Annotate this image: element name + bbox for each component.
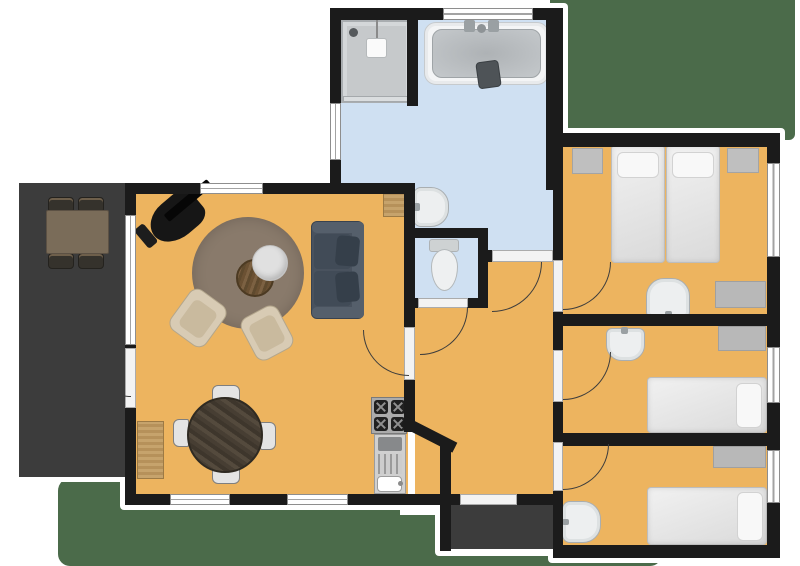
wall xyxy=(553,314,780,326)
window xyxy=(767,450,780,503)
window xyxy=(287,494,348,505)
bed-pillow xyxy=(736,383,762,428)
wall xyxy=(330,8,341,188)
window xyxy=(170,494,230,505)
outdoor-table xyxy=(46,210,109,254)
sofa-pillow xyxy=(335,235,361,267)
bedroom3-rug xyxy=(713,446,766,468)
bedroom3-basin-tap xyxy=(562,519,569,525)
bathtub-tap xyxy=(464,20,475,32)
bathtub-hand-shower xyxy=(475,60,502,90)
floor-plan xyxy=(0,0,800,566)
bed-pillow xyxy=(737,492,763,541)
dining-table xyxy=(187,397,263,473)
nightstand xyxy=(727,148,759,173)
counter-drainer xyxy=(378,454,402,474)
window xyxy=(200,183,263,194)
side-table xyxy=(252,245,288,281)
wall xyxy=(517,494,557,505)
kitchen-faucet xyxy=(398,481,403,486)
window xyxy=(767,163,780,257)
bedroom2-rug xyxy=(718,326,766,351)
nightstand xyxy=(572,148,603,174)
stove-burner xyxy=(374,417,388,431)
counter-inset xyxy=(378,437,402,451)
stove-burner xyxy=(391,400,405,414)
wall xyxy=(478,228,488,308)
shower-rail xyxy=(343,96,412,102)
wall xyxy=(125,183,415,194)
door-threshold xyxy=(553,350,563,402)
lawn-top-right xyxy=(550,0,795,140)
outdoor-chair xyxy=(48,253,74,269)
bed-pillow xyxy=(617,152,659,178)
wall xyxy=(440,443,451,551)
bathtub-tap xyxy=(488,20,499,32)
window xyxy=(443,8,533,20)
wall xyxy=(553,133,780,147)
door-threshold xyxy=(553,260,563,312)
bathtub-spout xyxy=(477,24,486,33)
wall xyxy=(553,133,563,558)
bedroom1-rug xyxy=(715,281,766,308)
stove-burner xyxy=(374,400,388,414)
door-threshold xyxy=(553,442,563,491)
window xyxy=(767,347,780,403)
shower-drain-dot xyxy=(349,28,358,37)
door-threshold xyxy=(492,250,553,262)
window xyxy=(330,103,341,160)
shower-handset xyxy=(366,38,387,58)
window xyxy=(125,215,136,345)
outdoor-chair xyxy=(78,253,104,269)
wall xyxy=(407,20,418,106)
door-threshold xyxy=(460,494,517,505)
bed-pillow xyxy=(672,152,714,178)
bedroom2-basin-tap xyxy=(621,327,628,334)
sofa-pillow xyxy=(335,271,361,303)
wall xyxy=(553,545,780,558)
wall xyxy=(408,228,488,238)
living-rug xyxy=(137,421,164,479)
